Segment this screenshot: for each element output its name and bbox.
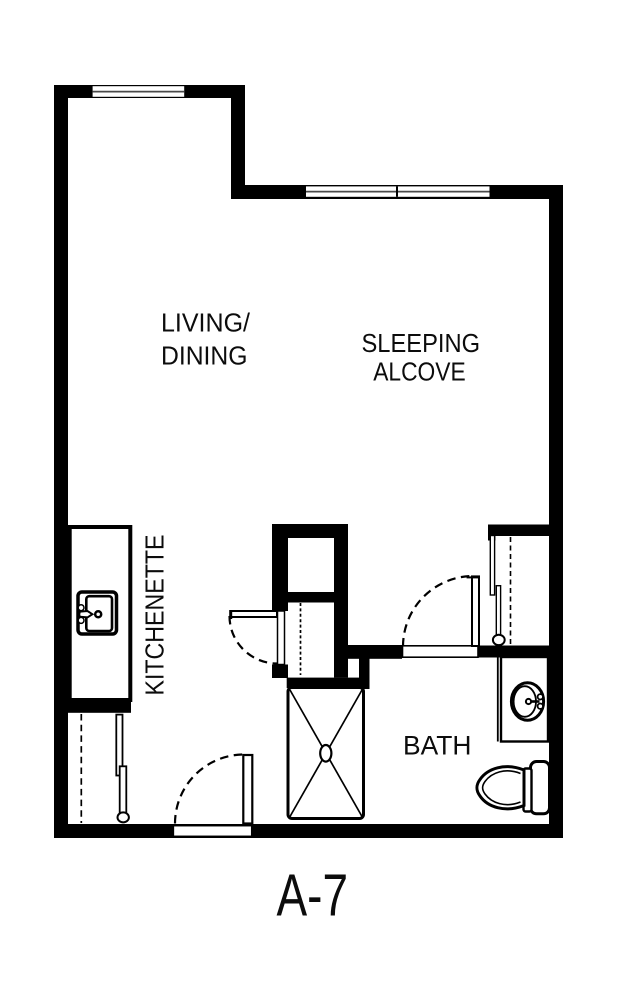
svg-text:KITCHENETTE: KITCHENETTE xyxy=(140,535,170,696)
svg-text:SLEEPING: SLEEPING xyxy=(362,328,481,358)
svg-text:LIVING/: LIVING/ xyxy=(161,308,251,338)
svg-text:DINING: DINING xyxy=(161,341,248,371)
svg-text:A-7: A-7 xyxy=(277,863,349,929)
svg-text:BATH: BATH xyxy=(403,731,472,761)
svg-text:ALCOVE: ALCOVE xyxy=(373,356,466,386)
